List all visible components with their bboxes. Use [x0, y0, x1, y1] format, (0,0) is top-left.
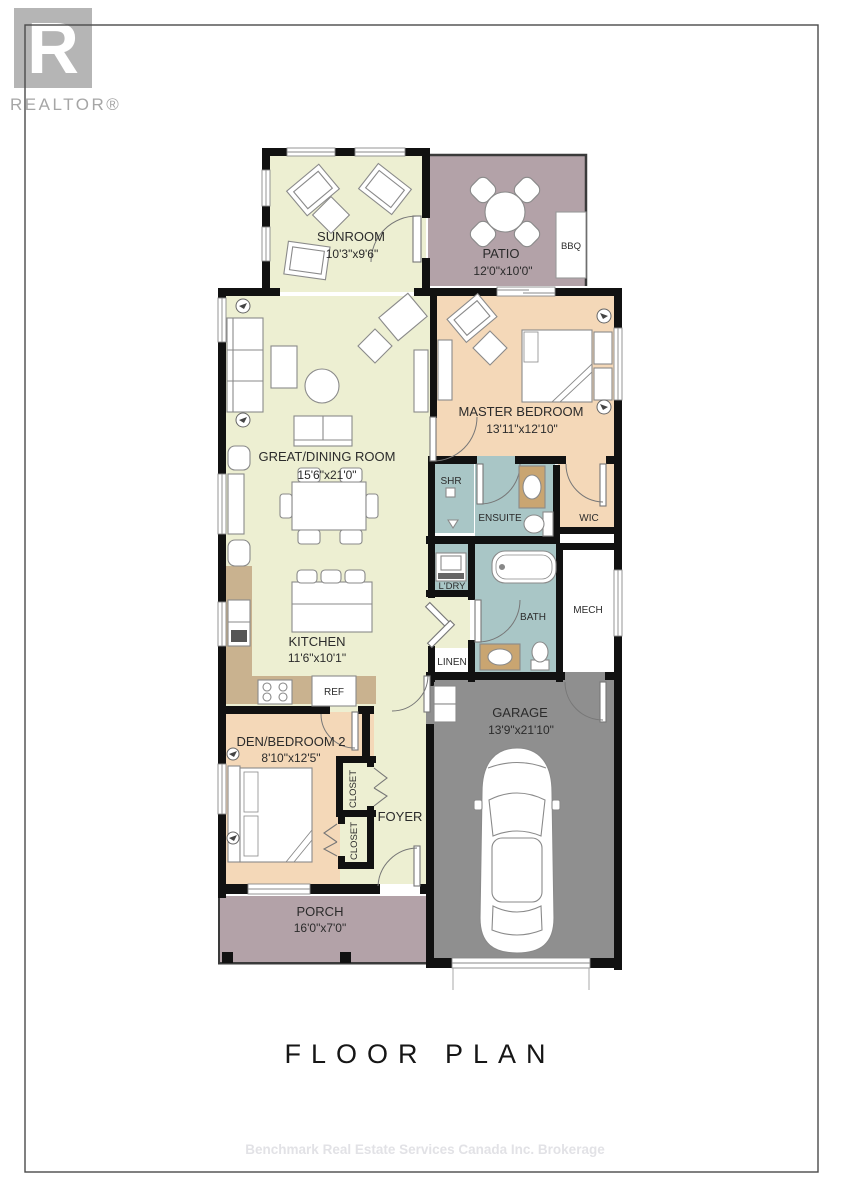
step-icon [434, 704, 456, 722]
ensuite-label: ENSUITE [478, 513, 522, 524]
dining-chair-icon [366, 494, 378, 518]
window [287, 148, 335, 156]
sunroom-dims: 10'3"x9'6" [326, 247, 378, 261]
window [262, 227, 270, 261]
laundry-label: L'DRY [439, 581, 467, 592]
great-dining-dims: 15'6"x21'0" [297, 468, 356, 482]
realtor-logo-letter: R [27, 9, 79, 89]
realtor-wordmark: REALTOR® [10, 95, 121, 114]
ensuite-door-opening [477, 456, 515, 464]
driveway-marks [453, 968, 589, 990]
floor-plan-page: SUNROOM 10'3"x9'6" PATIO 12'0"x10'0" BBQ… [0, 0, 846, 1200]
garage-label: GARAGE [492, 705, 548, 720]
window [614, 570, 622, 636]
media-console-icon [414, 350, 428, 412]
console-icon [228, 474, 244, 534]
stool-icon [297, 570, 317, 583]
light-icon [227, 832, 239, 844]
stool-icon [345, 570, 365, 583]
washer-icon [436, 553, 466, 581]
realtor-logo: R REALTOR® [10, 8, 121, 114]
kitchen-label: KITCHEN [288, 634, 345, 649]
door-leaf [477, 464, 483, 504]
porch-post-left [222, 952, 233, 963]
mirror-icon [552, 800, 560, 810]
chair-icon [284, 241, 330, 280]
mech-label: MECH [573, 605, 602, 616]
patio-table-icon [485, 192, 525, 232]
linen-label: LINEN [437, 657, 466, 668]
light-icon [597, 309, 611, 323]
porch-dims: 16'0"x7'0" [294, 921, 346, 935]
sofa-icon [227, 318, 263, 412]
garage-door [452, 958, 590, 968]
door-leaf [600, 682, 606, 722]
dining-chair-icon [298, 530, 320, 544]
window [248, 884, 310, 894]
garage-dims: 13'9"x21'10" [488, 723, 554, 737]
door-leaf [352, 712, 358, 750]
armchair-icon [228, 446, 250, 470]
dining-chair-icon [340, 530, 362, 544]
master-bedroom-label: MASTER BEDROOM [459, 404, 584, 419]
toilet-icon [531, 642, 549, 670]
door-leaf [475, 600, 481, 642]
porch-post-right [340, 952, 351, 963]
window [218, 602, 226, 646]
door-leaf [413, 216, 421, 262]
light-icon [597, 400, 611, 414]
bbq-label: BBQ [561, 241, 581, 252]
sliding-door [497, 287, 555, 296]
door-leaf [600, 464, 606, 506]
window [262, 170, 270, 206]
patio-dims: 12'0"x10'0" [473, 264, 532, 278]
light-icon [236, 299, 250, 313]
dining-table-icon [292, 482, 366, 530]
light-icon [236, 413, 250, 427]
window [614, 328, 622, 400]
stove-icon [258, 680, 292, 704]
window [218, 298, 226, 342]
porch-label: PORCH [297, 904, 344, 919]
headboard-icon [228, 766, 240, 862]
dining-chair-icon [280, 494, 292, 518]
window [355, 148, 405, 156]
floor-plan-canvas: SUNROOM 10'3"x9'6" PATIO 12'0"x10'0" BBQ… [0, 0, 846, 1200]
stool-icon [321, 570, 341, 583]
dresser-icon [438, 340, 452, 400]
wic-label: WIC [579, 513, 598, 524]
car-icon [474, 748, 560, 953]
bath-label: BATH [520, 612, 546, 623]
window [218, 474, 226, 534]
garage-rear-door-opening [565, 672, 605, 680]
nightstand-icon [594, 368, 612, 400]
shower-head-icon [446, 488, 455, 497]
light-icon [227, 748, 239, 760]
window [218, 764, 226, 814]
closet-upper-label: CLOSET [348, 770, 359, 808]
kitchen-island-icon [292, 582, 372, 632]
den-bedroom2-label: DEN/BEDROOM 2 [236, 734, 345, 749]
page-title: FLOOR PLAN [284, 1039, 555, 1069]
coffee-table-icon [271, 346, 297, 388]
shower-label: SHR [440, 476, 461, 487]
door-leaf [414, 846, 420, 886]
closet-lower-label: CLOSET [349, 822, 360, 860]
armchair-icon [228, 540, 250, 566]
door-leaf [430, 417, 436, 461]
step-icon [434, 686, 456, 704]
foyer-label: FOYER [378, 809, 423, 824]
nightstand-icon [594, 332, 612, 364]
kitchen-dims: 11'6"x10'1" [288, 651, 346, 665]
porch-front-edge [218, 962, 430, 965]
brokerage-watermark: Benchmark Real Estate Services Canada In… [245, 1142, 605, 1157]
round-table-icon [305, 369, 339, 403]
fridge-label: REF [324, 687, 344, 698]
great-dining-label: GREAT/DINING ROOM [259, 449, 396, 464]
sunroom-label: SUNROOM [317, 229, 385, 244]
patio-label: PATIO [482, 246, 519, 261]
mirror-icon [474, 800, 482, 810]
den-bedroom2-dims: 8'10"x12'5" [261, 751, 320, 765]
master-bedroom-dims: 13'11"x12'10" [486, 422, 558, 436]
wic-door-opening [566, 456, 606, 464]
